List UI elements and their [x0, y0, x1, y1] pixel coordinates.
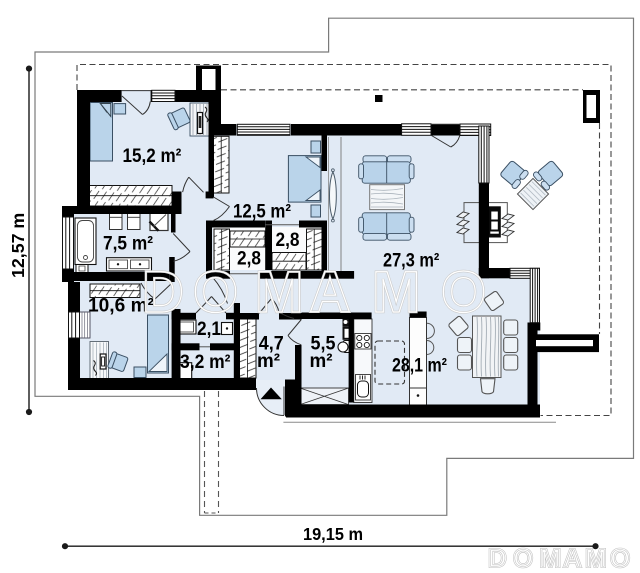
svg-text:12,57 m: 12,57 m	[8, 213, 28, 278]
svg-text:28,1 m²: 28,1 m²	[392, 356, 447, 377]
svg-text:2,8: 2,8	[276, 230, 300, 251]
svg-text:19,15 m: 19,15 m	[303, 524, 363, 544]
svg-text:7,5 m²: 7,5 m²	[103, 233, 154, 254]
svg-text:3,2 m²: 3,2 m²	[180, 352, 231, 373]
svg-text:12,5 m²: 12,5 m²	[233, 201, 292, 222]
svg-text:m²: m²	[257, 351, 281, 372]
svg-text:15,2 m²: 15,2 m²	[123, 146, 182, 167]
svg-text:m²: m²	[310, 351, 334, 372]
